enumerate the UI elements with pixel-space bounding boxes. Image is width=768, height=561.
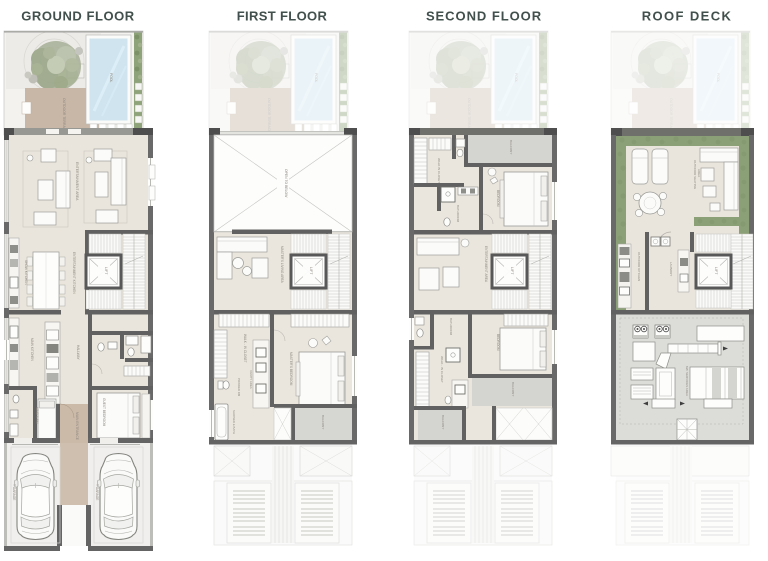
svg-text:WALK - IN CLOSET: WALK - IN CLOSET bbox=[440, 356, 444, 383]
svg-text:POWDER RM: POWDER RM bbox=[237, 378, 241, 397]
svg-text:OUTDOOR KITCHEN: OUTDOOR KITCHEN bbox=[637, 252, 641, 281]
svg-text:BEDROOM: BEDROOM bbox=[496, 190, 500, 207]
svg-text:SHOWER & BATH: SHOWER & BATH bbox=[232, 410, 236, 434]
svg-text:ROOF DECK: ROOF DECK bbox=[642, 9, 733, 24]
svg-text:OPEN TO BELOW: OPEN TO BELOW bbox=[284, 169, 288, 198]
svg-text:T GARAGE: T GARAGE bbox=[12, 484, 16, 500]
svg-text:GUEST BEDROOM: GUEST BEDROOM bbox=[102, 398, 106, 427]
svg-text:BALCONY: BALCONY bbox=[441, 415, 445, 429]
svg-text:BEDROOM: BEDROOM bbox=[496, 334, 500, 351]
svg-text:BALCONY: BALCONY bbox=[321, 415, 325, 429]
svg-text:VANITY AREA: VANITY AREA bbox=[249, 370, 253, 389]
svg-text:FIRST FLOOR: FIRST FLOOR bbox=[237, 9, 328, 24]
svg-text:MAIN KITCHEN: MAIN KITCHEN bbox=[30, 338, 34, 362]
svg-text:MAID'S RM: MAID'S RM bbox=[35, 407, 39, 424]
svg-text:SECOND FLOOR: SECOND FLOOR bbox=[426, 9, 542, 24]
svg-text:ENTERTAINMENT KITCHEN: ENTERTAINMENT KITCHEN bbox=[72, 252, 76, 294]
svg-text:HALLWAY: HALLWAY bbox=[76, 345, 80, 361]
svg-text:BATHROOM: BATHROOM bbox=[449, 318, 453, 336]
svg-text:GROUND FLOOR: GROUND FLOOR bbox=[21, 9, 135, 24]
svg-text:WALK - IN CLOSET: WALK - IN CLOSET bbox=[243, 334, 247, 363]
svg-text:MASTER'S LIVING AREA: MASTER'S LIVING AREA bbox=[280, 246, 284, 284]
svg-text:T GARAGE: T GARAGE bbox=[95, 484, 99, 500]
svg-text:AREA: AREA bbox=[697, 169, 701, 177]
svg-text:OUTDOOR SEATING: OUTDOOR SEATING bbox=[693, 160, 697, 190]
svg-text:ENTERTAINMENT AREA: ENTERTAINMENT AREA bbox=[484, 246, 488, 283]
svg-text:WALK IN CLOSET: WALK IN CLOSET bbox=[437, 158, 441, 183]
svg-text:BATHROOM: BATHROOM bbox=[456, 205, 460, 223]
svg-text:M/F SERVICES AREA: M/F SERVICES AREA bbox=[685, 366, 689, 396]
svg-text:SHOW KITCHEN: SHOW KITCHEN bbox=[24, 260, 28, 285]
svg-text:ENTERTAINMENT AREA: ENTERTAINMENT AREA bbox=[75, 162, 79, 201]
svg-text:MAIN ENTRANCE: MAIN ENTRANCE bbox=[75, 412, 79, 441]
svg-text:BALCONY: BALCONY bbox=[511, 382, 515, 396]
svg-text:MASTER'S BEDROOM: MASTER'S BEDROOM bbox=[289, 352, 293, 386]
svg-text:BALCONY: BALCONY bbox=[509, 140, 513, 154]
svg-text:LAUNDRY: LAUNDRY bbox=[669, 262, 673, 276]
